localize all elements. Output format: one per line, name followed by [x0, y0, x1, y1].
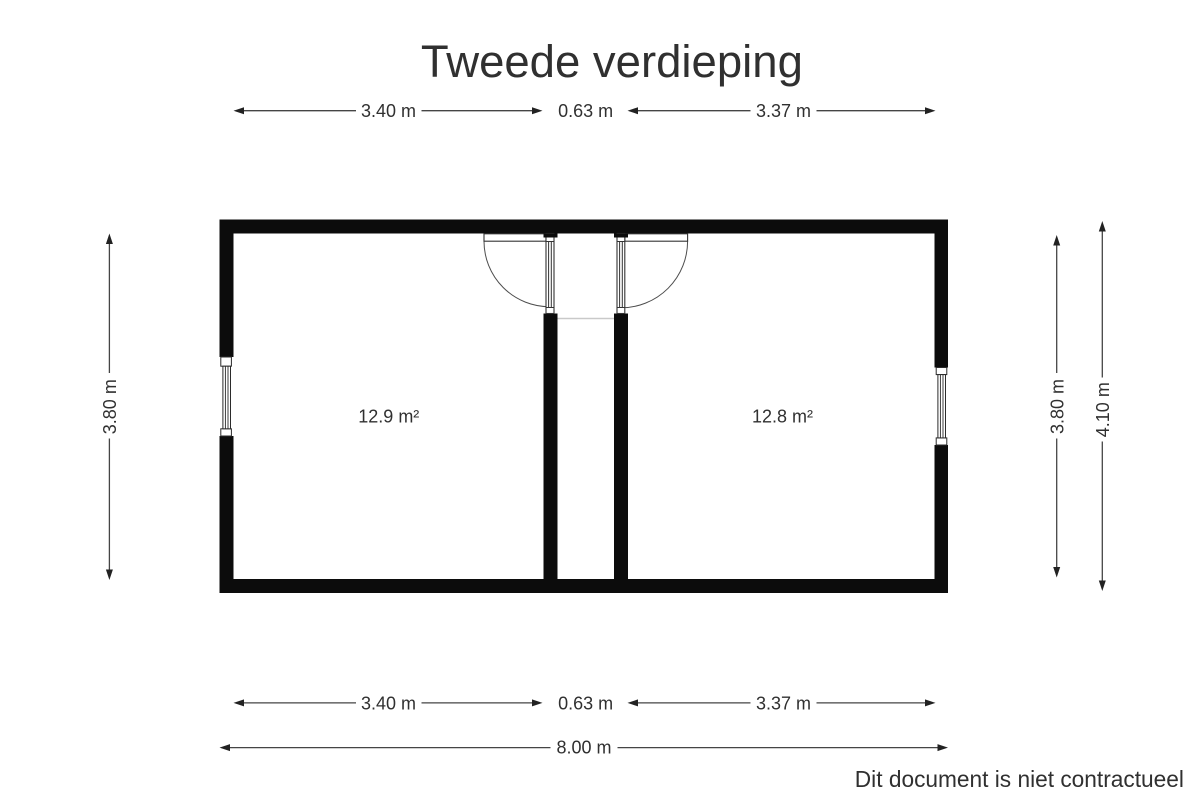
svg-text:3.80 m: 3.80 m: [1048, 379, 1068, 434]
svg-text:0.63 m: 0.63 m: [558, 694, 613, 714]
svg-text:4.10 m: 4.10 m: [1093, 382, 1113, 437]
svg-text:8.00 m: 8.00 m: [556, 738, 611, 758]
svg-text:3.40 m: 3.40 m: [361, 101, 416, 121]
svg-text:12.9 m²: 12.9 m²: [358, 406, 419, 426]
svg-text:12.8 m²: 12.8 m²: [752, 407, 813, 427]
svg-text:Tweede verdieping: Tweede verdieping: [421, 36, 803, 87]
svg-text:3.80 m: 3.80 m: [100, 379, 120, 434]
svg-text:3.37 m: 3.37 m: [756, 694, 811, 714]
svg-text:0.63 m: 0.63 m: [558, 101, 613, 121]
svg-text:Dit document is niet contractu: Dit document is niet contractueel: [855, 766, 1184, 792]
svg-text:3.40 m: 3.40 m: [361, 694, 416, 714]
svg-text:3.37 m: 3.37 m: [756, 101, 811, 121]
